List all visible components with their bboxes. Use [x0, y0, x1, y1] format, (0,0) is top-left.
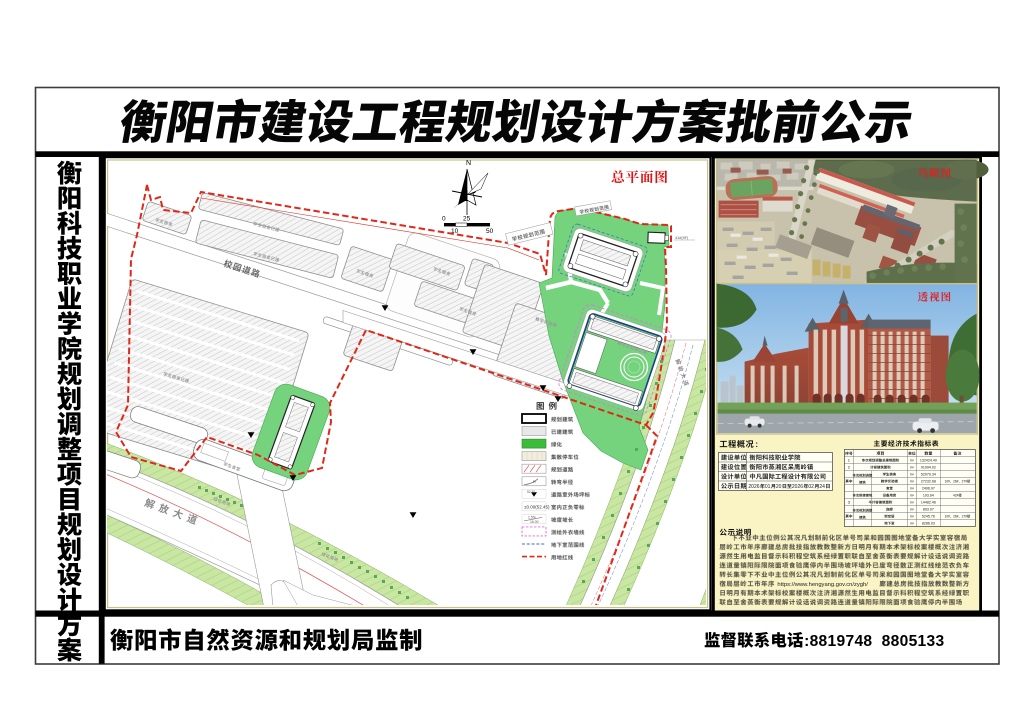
svg-text:5245.76: 5245.76	[922, 515, 935, 519]
svg-text:14482.46: 14482.46	[921, 501, 936, 505]
svg-text:52070.34: 52070.34	[921, 473, 936, 477]
svg-text:193.64: 193.64	[923, 494, 934, 498]
svg-text:2026: 2026	[748, 484, 759, 490]
svg-text:±0.00(52.45): ±0.00(52.45)	[524, 504, 550, 509]
svg-text:91994.02: 91994.02	[921, 466, 936, 470]
svg-text:50: 50	[486, 228, 494, 235]
svg-text:02: 02	[808, 484, 814, 490]
svg-text::: :	[755, 440, 758, 449]
svg-text:N: N	[466, 160, 471, 167]
svg-text:893.07: 893.07	[923, 508, 934, 512]
svg-text:25: 25	[463, 216, 471, 223]
svg-text:8286.03: 8286.03	[922, 522, 935, 526]
svg-text:41#(5F): 41#(5F)	[675, 236, 689, 240]
svg-text:2026: 2026	[792, 484, 803, 490]
svg-text:10: 10	[451, 228, 459, 235]
svg-text:https://www.hengyang.gov.cn/zy: https://www.hengyang.gov.cn/zygh/	[777, 582, 868, 588]
svg-text:0: 0	[442, 216, 446, 223]
svg-text:16.00: 16.00	[530, 520, 539, 524]
svg-text:10#、26#、27#楼: 10#、26#、27#楼	[945, 479, 971, 484]
svg-text:1.5%: 1.5%	[528, 515, 536, 519]
svg-text:24: 24	[819, 484, 825, 490]
svg-text:20: 20	[776, 484, 782, 490]
svg-text::8819748 8805133: :8819748 8805133	[804, 633, 944, 650]
svg-text:R: R	[533, 479, 536, 484]
svg-text:132424.49: 132424.49	[920, 459, 937, 463]
svg-text:01: 01	[765, 484, 771, 490]
svg-text:10#、26#、27#楼: 10#、26#、27#楼	[945, 514, 971, 519]
svg-text:27232.68: 27232.68	[921, 480, 936, 484]
svg-text:42#楼: 42#楼	[953, 493, 962, 498]
svg-text:52.30: 52.30	[527, 490, 535, 494]
svg-text:2496.97: 2496.97	[922, 487, 935, 491]
